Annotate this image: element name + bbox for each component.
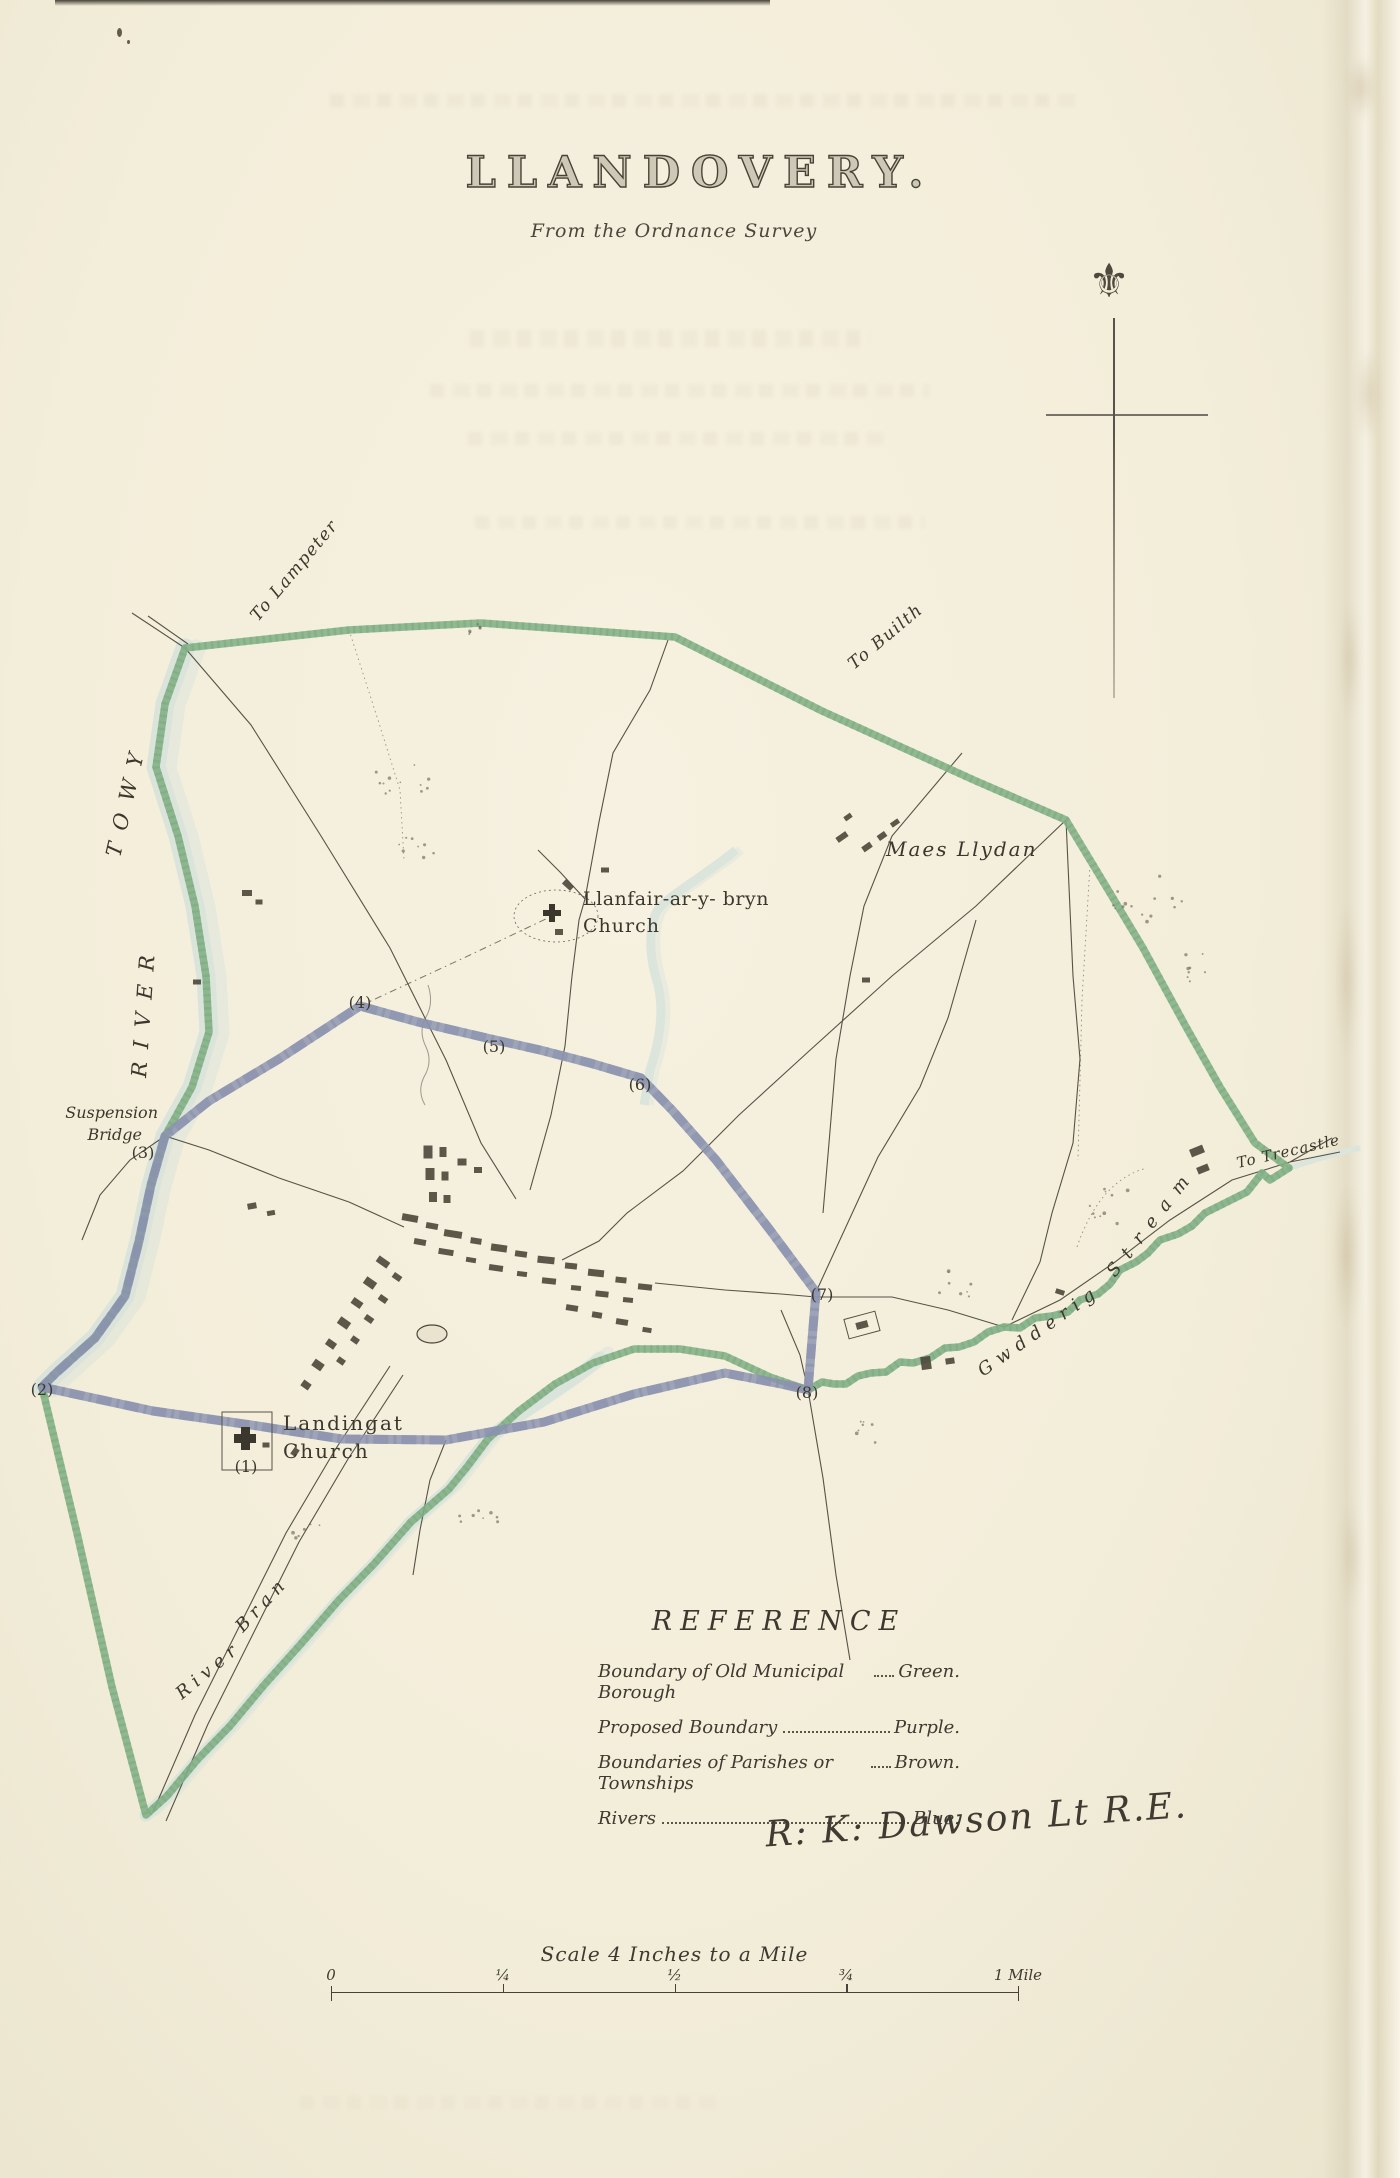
tree-mark <box>422 856 425 859</box>
tree-mark <box>938 1291 941 1294</box>
legend-leader <box>874 1675 894 1677</box>
tree-mark <box>1188 971 1190 973</box>
marker-5: (5) <box>483 1037 506 1056</box>
tree-mark <box>479 626 482 629</box>
building <box>489 1264 504 1272</box>
label-bridge: Bridge <box>87 1125 142 1144</box>
label-maes-llydan: Maes Llydan <box>885 837 1037 861</box>
marker-7: (7) <box>811 1285 834 1304</box>
tree-mark <box>417 846 419 848</box>
tree-mark <box>874 1441 877 1444</box>
label-llanfair-line2: Church <box>583 915 660 937</box>
tree-mark <box>969 1283 972 1286</box>
tree-mark <box>472 1514 475 1517</box>
tree-mark <box>1141 913 1143 915</box>
building <box>424 1146 433 1159</box>
scale-tick-label: ½ <box>667 1966 682 1984</box>
legend-value: Purple. <box>894 1717 960 1738</box>
tree-mark <box>388 776 392 780</box>
building <box>542 1277 557 1284</box>
tree-mark <box>1102 1211 1106 1215</box>
tree-mark <box>496 1516 499 1519</box>
map-canvas: To Lampeter To Builth To Trecastle Maes … <box>0 0 1400 2178</box>
building <box>1055 1288 1065 1296</box>
tree-mark <box>482 1517 484 1519</box>
tree-mark <box>1145 920 1149 924</box>
building <box>642 1327 652 1333</box>
marker-6: (6) <box>629 1075 652 1094</box>
legend-label: Proposed Boundary <box>598 1717 777 1738</box>
building <box>515 1250 528 1258</box>
building <box>350 1297 363 1309</box>
tree-mark <box>855 1431 859 1435</box>
building <box>861 842 873 853</box>
building <box>193 980 201 985</box>
building <box>300 1380 311 1391</box>
building <box>890 818 900 827</box>
tree-mark <box>1130 905 1133 908</box>
tree-mark <box>477 1509 480 1512</box>
building <box>363 1276 377 1289</box>
building <box>601 868 609 873</box>
tree-mark <box>862 1424 864 1426</box>
building <box>470 1237 482 1245</box>
legend-label: Rivers <box>598 1808 656 1829</box>
building <box>242 890 252 896</box>
building <box>862 978 870 983</box>
tree-mark <box>1171 897 1174 900</box>
building <box>588 1269 605 1278</box>
tree-mark <box>1181 900 1183 902</box>
building <box>429 1192 437 1202</box>
scale-title: Scale 4 Inches to a Mile <box>331 1942 1018 1966</box>
legend-label: Boundary of Old Municipal Borough <box>598 1661 868 1703</box>
legend-row-purple: Proposed Boundary Purple. <box>598 1717 960 1738</box>
town-brook <box>421 985 431 1105</box>
tree-mark <box>1153 897 1156 900</box>
building <box>623 1297 633 1303</box>
tree-mark <box>871 1423 874 1426</box>
building <box>615 1276 627 1283</box>
building <box>311 1359 325 1372</box>
building <box>466 1257 477 1264</box>
building <box>263 1443 270 1448</box>
tree-mark <box>405 837 407 839</box>
building <box>491 1243 508 1252</box>
legend-value: Brown. <box>895 1752 960 1773</box>
label-llanfair-line1: Llanfair-ar-y- bryn <box>583 888 769 910</box>
tree-mark <box>489 1511 493 1515</box>
tree-mark <box>389 790 391 792</box>
castle-mound <box>417 1325 447 1343</box>
tree-mark <box>1202 953 1204 955</box>
tree-mark <box>426 787 429 790</box>
building <box>945 1357 955 1364</box>
legend-value: Green. <box>898 1661 960 1682</box>
scale-tick <box>1018 1986 1019 2001</box>
tree-mark <box>411 837 414 840</box>
tree-mark <box>947 1269 951 1273</box>
tree-mark <box>1188 966 1191 969</box>
tree-mark <box>1092 1212 1095 1215</box>
tree-mark <box>291 1531 295 1535</box>
landingat-church-symbol <box>234 1427 256 1450</box>
building <box>843 813 852 822</box>
tree-mark <box>400 781 402 783</box>
tree-mark <box>1184 953 1187 956</box>
marker-2: (2) <box>31 1380 54 1399</box>
building <box>555 929 563 935</box>
label-river-towy-towy: TOWY <box>101 738 151 859</box>
label-suspension: Suspension <box>65 1103 158 1122</box>
label-to-builth: To Builth <box>844 600 927 674</box>
tree-mark <box>402 849 405 852</box>
tree-mark <box>1114 907 1116 909</box>
tree-mark <box>948 1282 951 1285</box>
legend-leader <box>871 1766 891 1768</box>
tree-clusters <box>291 623 1206 1540</box>
building <box>565 1262 578 1269</box>
building <box>444 1229 463 1239</box>
map-sheet: LLANDOVERY. From the Ordnance Survey ⚜ <box>0 0 1400 2178</box>
scale-tick-label: 0 <box>326 1966 336 1984</box>
building <box>414 1238 427 1246</box>
scale-bar: Scale 4 Inches to a Mile 0 ¼ ½ ¾ 1 Mile <box>331 1942 1018 2002</box>
scale-tick-label: ¼ <box>495 1966 510 1984</box>
label-landingat-line2: Church <box>283 1439 370 1463</box>
legend-leader <box>783 1731 890 1733</box>
tree-mark <box>1121 905 1124 908</box>
tree-mark <box>1116 890 1119 893</box>
building <box>571 1285 581 1291</box>
tree-mark <box>1115 1222 1118 1225</box>
gwdderig-stream-water <box>808 1148 1360 1390</box>
building <box>474 1167 482 1173</box>
tree-mark <box>1187 976 1189 978</box>
tree-mark <box>458 1514 461 1517</box>
tree-mark <box>384 792 386 794</box>
building <box>337 1316 351 1329</box>
tree-mark <box>1149 914 1152 917</box>
scale-tick <box>846 1984 847 1993</box>
tree-mark <box>297 1535 299 1537</box>
tree-mark <box>460 1520 463 1523</box>
building <box>350 1335 360 1345</box>
building <box>247 1202 257 1209</box>
tree-mark <box>1173 906 1176 909</box>
tree-mark <box>432 852 435 855</box>
tree-mark <box>1158 875 1161 878</box>
building <box>426 1222 439 1230</box>
building <box>438 1248 454 1256</box>
building <box>256 900 263 905</box>
tree-mark <box>966 1291 968 1293</box>
building <box>444 1195 451 1203</box>
tree-mark <box>294 1536 297 1539</box>
tree-mark <box>1204 971 1206 973</box>
building <box>517 1271 528 1277</box>
scale-tick-label: 1 Mile <box>994 1966 1042 1984</box>
tree-mark <box>959 1292 962 1295</box>
building <box>376 1255 391 1268</box>
tree-mark <box>420 784 422 786</box>
tree-mark <box>319 1524 321 1526</box>
building <box>336 1356 346 1366</box>
label-to-lampeter: To Lampeter <box>247 516 343 625</box>
building <box>1196 1164 1210 1175</box>
label-landingat-line1: Landingat <box>283 1411 404 1435</box>
building <box>920 1356 932 1370</box>
building <box>378 1294 389 1304</box>
tree-mark <box>382 782 384 784</box>
building <box>402 1213 419 1223</box>
tree-mark <box>379 782 382 785</box>
building <box>325 1338 337 1349</box>
building <box>566 1304 579 1312</box>
tree-mark <box>398 844 400 846</box>
tree-mark <box>496 1520 499 1523</box>
tree-mark <box>423 843 426 846</box>
tree-mark <box>1111 1194 1114 1197</box>
marker-1: (1) <box>235 1457 258 1476</box>
tree-mark <box>1189 980 1191 982</box>
tree-mark <box>858 1430 860 1432</box>
building <box>364 1314 375 1324</box>
tree-mark <box>1089 1205 1091 1207</box>
tree-mark <box>375 771 378 774</box>
marker-3: (3) <box>132 1143 155 1162</box>
tree-mark <box>1112 904 1114 906</box>
building <box>458 1159 467 1166</box>
field-boundaries <box>349 630 1147 1247</box>
label-river-towy-river: RIVER <box>127 942 160 1080</box>
tree-mark <box>1099 1215 1101 1217</box>
marker-8: (8) <box>796 1383 819 1402</box>
building <box>442 1172 449 1181</box>
tree-mark <box>863 1421 865 1423</box>
scale-tick <box>331 1986 332 2001</box>
marker-4: (4) <box>349 993 372 1012</box>
building <box>440 1147 447 1157</box>
scale-tick-label: ¾ <box>839 1966 854 1984</box>
building <box>855 1320 868 1330</box>
building <box>616 1318 629 1326</box>
building <box>592 1311 603 1318</box>
tree-mark <box>310 1524 312 1526</box>
tree-mark <box>1126 1189 1130 1193</box>
tree-mark <box>860 1421 862 1423</box>
tree-mark <box>968 1295 970 1297</box>
tree-mark <box>1103 1188 1106 1191</box>
building <box>426 1168 435 1180</box>
tree-mark <box>1094 1216 1096 1218</box>
scale-tick <box>675 1984 676 1993</box>
tree-mark <box>469 631 471 633</box>
tree-mark <box>477 623 479 625</box>
scale-tick <box>503 1984 504 1993</box>
legend-row-green: Boundary of Old Municipal Borough Green. <box>598 1661 960 1703</box>
tree-mark <box>303 1528 306 1531</box>
tree-mark <box>414 764 416 766</box>
building <box>835 831 848 843</box>
building <box>392 1272 403 1282</box>
legend-label: Boundaries of Parishes or Townships <box>598 1752 865 1794</box>
reference-title: REFERENCE <box>598 1606 960 1637</box>
building <box>638 1283 653 1290</box>
building <box>595 1290 609 1297</box>
building <box>267 1210 276 1216</box>
building <box>1189 1145 1205 1158</box>
legend-row-brown: Boundaries of Parishes or Townships Brow… <box>598 1752 960 1794</box>
tree-mark <box>420 790 423 793</box>
tree-mark <box>1124 902 1128 906</box>
tree-mark <box>427 778 430 781</box>
map-labels: To Lampeter To Builth To Trecastle Maes … <box>65 516 1341 1704</box>
tree-mark <box>1105 1191 1107 1193</box>
building <box>537 1256 555 1265</box>
